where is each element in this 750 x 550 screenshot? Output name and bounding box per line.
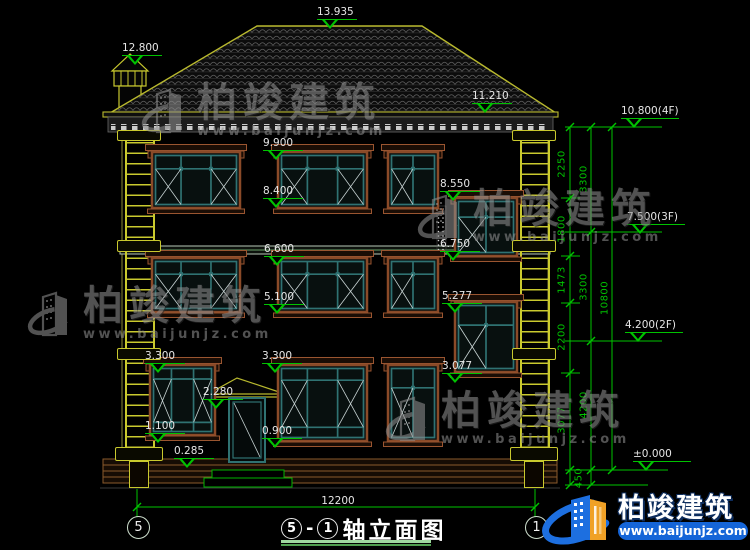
- column-base: [115, 447, 163, 461]
- title-separator: -: [306, 518, 313, 539]
- title-underline: [281, 544, 431, 546]
- chain-dimension-label: 1800: [557, 215, 568, 242]
- plinth: [100, 459, 560, 488]
- elevation-marker: 8.400: [263, 186, 303, 208]
- window: [381, 144, 445, 219]
- elevation-marker: 3.300: [145, 351, 185, 373]
- level-marker: 4.200(2F): [625, 320, 683, 342]
- column-capital: [117, 130, 161, 141]
- brand-url: www.baijunjz.com: [618, 522, 748, 540]
- column-capital: [512, 348, 556, 360]
- chain-dimension-label: 3077: [557, 406, 568, 433]
- elevation-marker: 3.077: [442, 361, 482, 383]
- elevation-marker: 12.800: [122, 43, 162, 65]
- column-capital: [117, 240, 161, 252]
- chain-dimension-label: 2250: [557, 150, 568, 177]
- elevation-marker: 0.285: [174, 446, 214, 468]
- title-axis-right: 1: [317, 518, 338, 539]
- elevation-marker: 6.600: [264, 244, 304, 266]
- column-capital: [512, 240, 556, 252]
- chain-dimension-label: 10800: [600, 281, 611, 315]
- elevation-marker: 9.900: [263, 138, 303, 160]
- elevation-marker: 0.900: [262, 426, 302, 448]
- column-pedestal: [129, 461, 149, 488]
- cad-elevation-drawing: 13.93512.80011.2109.9008.4008.5506.6006.…: [0, 0, 750, 550]
- right-corner-quoin: [520, 133, 550, 460]
- window: [381, 250, 445, 323]
- title-underline: [281, 540, 431, 543]
- elevation-marker: 5.277: [442, 291, 482, 313]
- footer-brand-logo: 柏竣建筑 www.baijunjz.com: [538, 486, 750, 548]
- chain-dimension-label: 1473: [557, 266, 568, 293]
- brand-logo-icon: [538, 486, 618, 548]
- elevation-marker: 1.100: [145, 421, 185, 443]
- title-axis-left: 5: [281, 518, 302, 539]
- chain-dimension-label: 3300: [579, 165, 590, 192]
- axis-bubble-5: 5: [127, 516, 150, 539]
- level-marker: 10.800(4F): [621, 106, 679, 128]
- chain-dimension-label: 2200: [557, 323, 568, 350]
- level-marker: ±0.000: [633, 449, 691, 471]
- column-base: [510, 447, 558, 461]
- window: [145, 144, 247, 219]
- elevation-marker: 11.210: [472, 91, 512, 113]
- level-marker: 7.500(3F): [627, 212, 685, 234]
- elevation-marker: 6.750: [440, 239, 480, 261]
- window: [381, 357, 445, 452]
- elevation-marker: 2.280: [203, 387, 243, 409]
- column-pedestal: [524, 461, 544, 488]
- elevation-marker: 13.935: [317, 7, 357, 29]
- column-capital: [512, 130, 556, 141]
- overall-width-dimension: 12200: [316, 495, 360, 507]
- window: [145, 250, 247, 323]
- elevation-marker: 3.300: [262, 351, 302, 373]
- eave-cornice: [103, 112, 558, 132]
- chain-dimension-label: 3300: [579, 273, 590, 300]
- chain-dimension-label: 4200: [579, 391, 590, 418]
- elevation-marker: 5.100: [264, 292, 304, 314]
- brand-name: 柏竣建筑: [618, 486, 734, 525]
- entry-steps: [204, 470, 292, 487]
- elevation-marker: 8.550: [440, 179, 480, 201]
